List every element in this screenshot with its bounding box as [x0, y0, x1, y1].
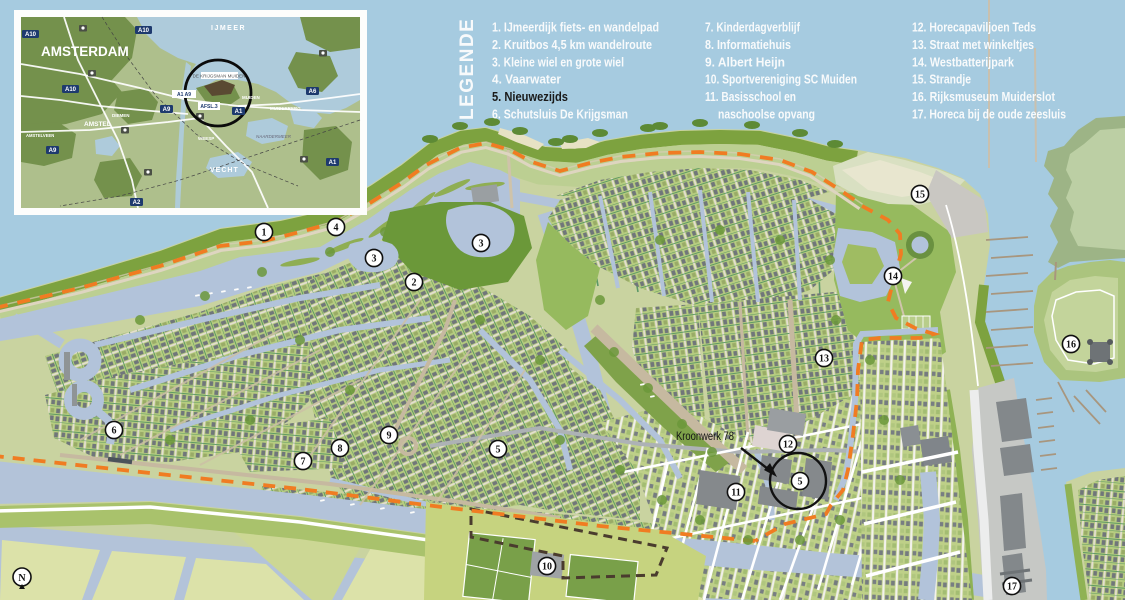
svg-text:MUIDERBERG: MUIDERBERG — [270, 106, 301, 111]
svg-text:A10: A10 — [138, 28, 150, 34]
svg-text:A10: A10 — [25, 32, 37, 38]
svg-text:6. Schutsluis De Krijgsman: 6. Schutsluis De Krijgsman — [492, 107, 628, 122]
svg-text:9: 9 — [387, 431, 392, 442]
svg-text:AMSTELVEEN: AMSTELVEEN — [26, 133, 54, 138]
svg-text:14: 14 — [888, 272, 898, 283]
svg-text:3. Kleine wiel en grote wiel: 3. Kleine wiel en grote wiel — [492, 54, 624, 69]
svg-text:11: 11 — [731, 488, 740, 499]
svg-text:17. Horeca bij de oude zeeslui: 17. Horeca bij de oude zeesluis — [912, 107, 1066, 122]
svg-text:A1: A1 — [329, 160, 337, 166]
svg-text:DIEMEN: DIEMEN — [112, 113, 130, 118]
svg-text:17: 17 — [1007, 582, 1017, 593]
svg-text:10. Sportvereniging SC Muiden: 10. Sportvereniging SC Muiden — [705, 72, 857, 87]
svg-text:12: 12 — [783, 440, 793, 451]
svg-text:MUIDEN: MUIDEN — [242, 95, 260, 100]
svg-text:NAARDERMEER: NAARDERMEER — [256, 134, 292, 139]
svg-text:5: 5 — [496, 445, 501, 456]
svg-text:10: 10 — [542, 562, 552, 573]
svg-text:IJMEER: IJMEER — [211, 25, 246, 32]
svg-text:13. Straat met winkeltjes: 13. Straat met winkeltjes — [912, 37, 1034, 52]
svg-text:16: 16 — [1066, 340, 1076, 351]
svg-text:11. Basisschool en: 11. Basisschool en — [705, 89, 796, 104]
svg-text:2: 2 — [412, 278, 417, 289]
svg-text:AMSTERDAM: AMSTERDAM — [41, 44, 129, 59]
svg-text:A10: A10 — [65, 87, 77, 93]
svg-text:9. Albert Heijn: 9. Albert Heijn — [705, 54, 785, 69]
svg-text:4. Vaarwater: 4. Vaarwater — [492, 72, 561, 87]
svg-text:4: 4 — [334, 223, 339, 234]
svg-text:naschoolse opvang: naschoolse opvang — [718, 107, 815, 122]
svg-text:6: 6 — [112, 426, 117, 437]
svg-text:1. IJmeerdijk fiets- en wandel: 1. IJmeerdijk fiets- en wandelpad — [492, 20, 659, 35]
svg-text:VECHT: VECHT — [210, 167, 239, 174]
svg-text:A1: A1 — [235, 109, 243, 115]
svg-text:N: N — [18, 573, 26, 584]
svg-text:3: 3 — [372, 254, 377, 265]
svg-text:8: 8 — [338, 444, 343, 455]
svg-text:8. Informatiehuis: 8. Informatiehuis — [705, 37, 791, 52]
svg-text:AFSL.3: AFSL.3 — [200, 104, 217, 110]
svg-text:13: 13 — [819, 354, 829, 365]
svg-text:5. Nieuwezijds: 5. Nieuwezijds — [492, 89, 568, 104]
svg-text:12. Horecapaviljoen Teds: 12. Horecapaviljoen Teds — [912, 20, 1036, 35]
svg-text:WEESP: WEESP — [198, 136, 214, 141]
svg-text:2. Kruitbos 4,5 km wandelroute: 2. Kruitbos 4,5 km wandelroute — [492, 37, 652, 52]
svg-text:15. Strandje: 15. Strandje — [912, 72, 971, 87]
svg-text:5: 5 — [798, 477, 803, 488]
svg-text:3: 3 — [479, 239, 484, 250]
svg-text:16. Rijksmuseum Muiderslot: 16. Rijksmuseum Muiderslot — [912, 89, 1056, 104]
svg-text:A2: A2 — [133, 200, 141, 206]
svg-text:Kroonwerk 78: Kroonwerk 78 — [676, 431, 734, 443]
svg-text:1: 1 — [262, 228, 267, 239]
svg-text:15: 15 — [915, 190, 925, 201]
svg-text:A9: A9 — [163, 107, 171, 113]
svg-text:A9: A9 — [49, 148, 57, 154]
svg-text:A1 A9: A1 A9 — [177, 92, 191, 98]
svg-text:14. Westbatterijpark: 14. Westbatterijpark — [912, 54, 1015, 69]
svg-text:7: 7 — [301, 457, 306, 468]
svg-text:7. Kinderdagverblijf: 7. Kinderdagverblijf — [705, 20, 801, 35]
svg-text:DE KRIJGSMAN MUIDEN: DE KRIJGSMAN MUIDEN — [193, 74, 246, 79]
svg-text:AMSTEL: AMSTEL — [84, 121, 111, 128]
svg-text:A6: A6 — [309, 89, 317, 95]
svg-text:LEGENDE: LEGENDE — [457, 18, 478, 120]
